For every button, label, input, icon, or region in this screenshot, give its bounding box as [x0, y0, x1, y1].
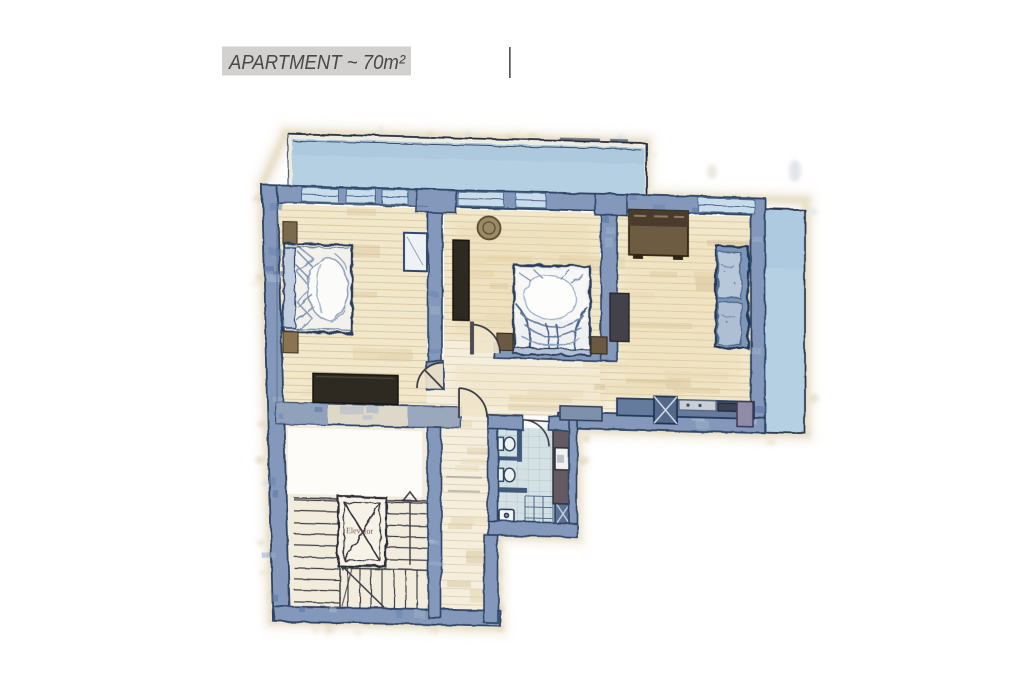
- svg-text:Elevator: Elevator: [346, 526, 373, 536]
- svg-text:APARTMENT ~ 70m²: APARTMENT ~ 70m²: [228, 52, 406, 74]
